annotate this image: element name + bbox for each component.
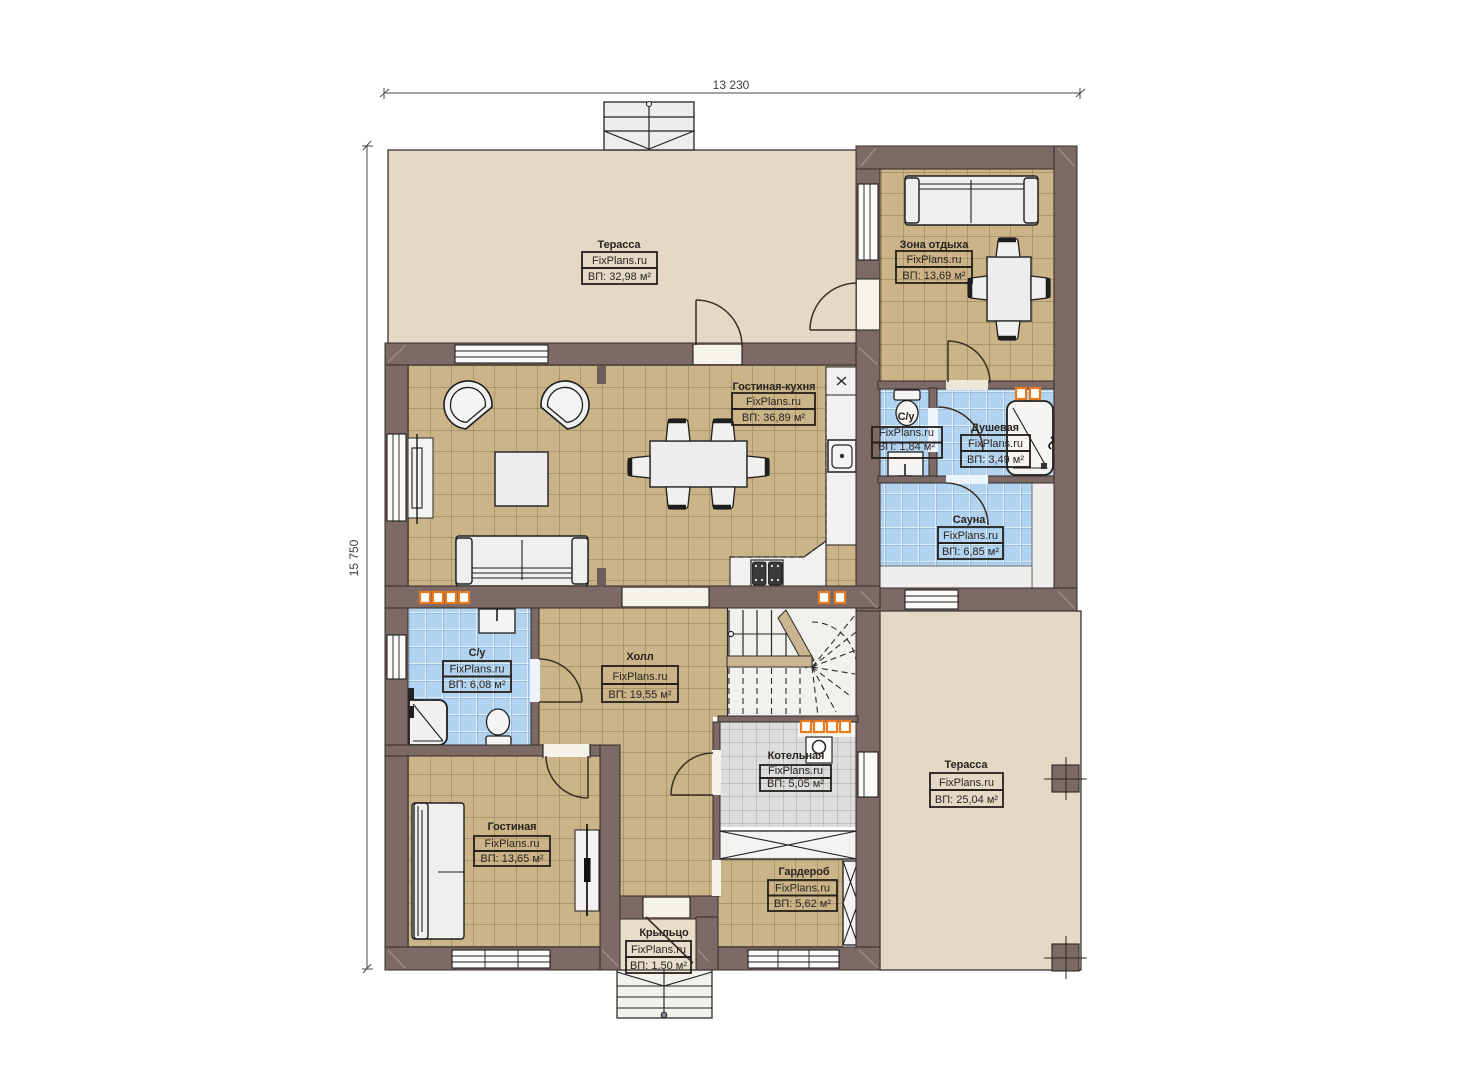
svg-text:ВП: 25,04 м²: ВП: 25,04 м² — [935, 794, 999, 806]
svg-text:ВП: 36,89 м²: ВП: 36,89 м² — [742, 412, 806, 424]
svg-text:Гостиная: Гостиная — [488, 821, 537, 833]
svg-text:Крыльцо: Крыльцо — [639, 927, 689, 939]
svg-text:ВП: 1,50 м²: ВП: 1,50 м² — [630, 960, 687, 972]
svg-text:ВП: 6,85 м²: ВП: 6,85 м² — [942, 546, 999, 558]
svg-text:Гардероб: Гардероб — [778, 866, 829, 878]
svg-text:FixPlans.ru: FixPlans.ru — [484, 838, 539, 850]
svg-text:ВП: 6,08 м²: ВП: 6,08 м² — [448, 679, 505, 691]
svg-text:Душевая: Душевая — [971, 422, 1019, 434]
svg-text:Терасса: Терасса — [598, 239, 642, 251]
svg-text:FixPlans.ru: FixPlans.ru — [968, 438, 1023, 450]
svg-text:Терасса: Терасса — [945, 759, 989, 771]
svg-text:Холл: Холл — [626, 651, 653, 663]
svg-text:FixPlans.ru: FixPlans.ru — [449, 664, 504, 676]
svg-text:FixPlans.ru: FixPlans.ru — [939, 777, 994, 789]
svg-text:ВП: 3,49 м²: ВП: 3,49 м² — [967, 454, 1024, 466]
svg-text:ВП: 5,62 м²: ВП: 5,62 м² — [774, 898, 831, 910]
svg-text:FixPlans.ru: FixPlans.ru — [943, 530, 998, 542]
svg-text:ВП: 13,69 м²: ВП: 13,69 м² — [902, 270, 966, 282]
svg-text:Сауна: Сауна — [953, 514, 987, 526]
svg-text:Гостиная-кухня: Гостиная-кухня — [733, 381, 816, 393]
svg-text:15 750: 15 750 — [347, 539, 361, 576]
svg-text:ВП: 1,84 м²: ВП: 1,84 м² — [878, 441, 935, 453]
svg-text:FixPlans.ru: FixPlans.ru — [631, 944, 686, 956]
svg-text:13 230: 13 230 — [713, 78, 750, 92]
svg-text:Зона отдыха: Зона отдыха — [900, 239, 970, 251]
svg-text:С/у: С/у — [898, 411, 916, 423]
svg-text:ВП: 13,65 м²: ВП: 13,65 м² — [480, 853, 544, 865]
svg-text:FixPlans.ru: FixPlans.ru — [592, 255, 647, 267]
svg-text:ВП: 19,55 м²: ВП: 19,55 м² — [608, 689, 672, 701]
svg-text:FixPlans.ru: FixPlans.ru — [775, 883, 830, 895]
svg-text:FixPlans.ru: FixPlans.ru — [879, 427, 934, 439]
svg-text:FixPlans.ru: FixPlans.ru — [746, 396, 801, 408]
svg-text:FixPlans.ru: FixPlans.ru — [768, 765, 823, 777]
svg-text:FixPlans.ru: FixPlans.ru — [906, 254, 961, 266]
svg-text:FixPlans.ru: FixPlans.ru — [612, 671, 667, 683]
svg-text:Котельная: Котельная — [768, 750, 825, 762]
svg-text:ВП: 5,05 м²: ВП: 5,05 м² — [767, 778, 824, 790]
svg-text:ВП: 32,98 м²: ВП: 32,98 м² — [588, 271, 652, 283]
svg-text:С/у: С/у — [469, 647, 487, 659]
